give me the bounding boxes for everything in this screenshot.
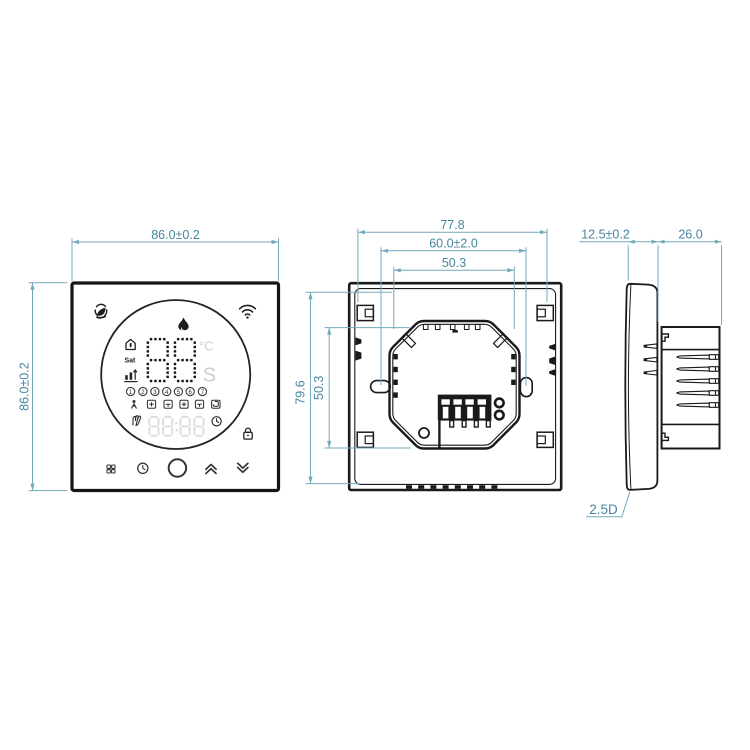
- svg-text:50.3: 50.3: [312, 376, 326, 400]
- svg-text:26.0: 26.0: [678, 228, 702, 242]
- svg-text:77.8: 77.8: [440, 218, 464, 232]
- svg-text:°C: °C: [199, 339, 214, 354]
- svg-text:60.0±2.0: 60.0±2.0: [429, 237, 478, 251]
- svg-text:12.5±0.2: 12.5±0.2: [581, 228, 630, 242]
- svg-text:86.0±0.2: 86.0±0.2: [151, 228, 200, 242]
- svg-text:Sat: Sat: [125, 358, 137, 365]
- svg-text:86.0±0.2: 86.0±0.2: [17, 362, 31, 411]
- svg-text:79.6: 79.6: [294, 380, 308, 404]
- svg-text:2.5D: 2.5D: [589, 502, 618, 517]
- svg-text:50.3: 50.3: [442, 256, 466, 270]
- svg-text:S: S: [203, 365, 216, 387]
